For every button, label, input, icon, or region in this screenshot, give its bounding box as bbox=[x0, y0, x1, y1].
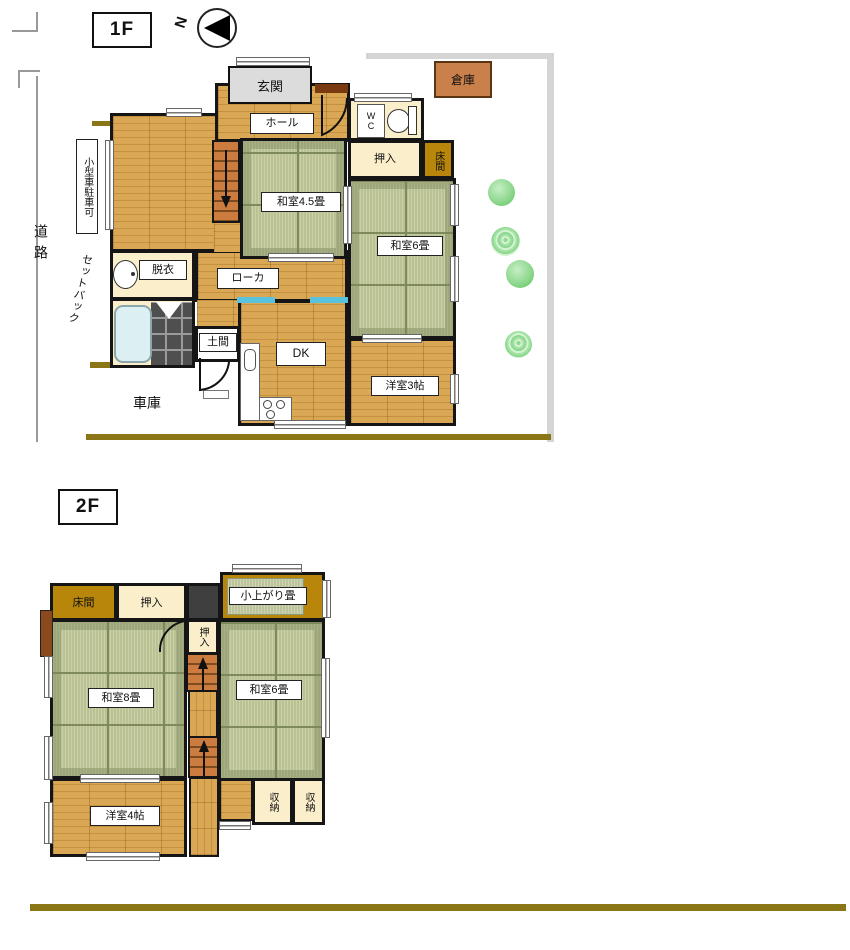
closet1f-label: 押入 bbox=[348, 140, 422, 179]
floor2-title-box: 2F bbox=[58, 489, 118, 525]
warehouse-box: 倉庫 bbox=[434, 61, 492, 98]
window bbox=[105, 140, 114, 230]
tatami8-tag: 和室8畳 bbox=[88, 688, 154, 708]
stove-burner-icon bbox=[263, 400, 272, 409]
raised-tatami-label: 小上がり畳 bbox=[241, 590, 296, 603]
window bbox=[44, 802, 53, 844]
toilet-icon bbox=[387, 109, 410, 133]
doma-door-arc bbox=[198, 358, 230, 392]
floorplan-canvas: 1F N 玄関 bbox=[0, 0, 850, 950]
garage-text: 車庫 bbox=[133, 395, 161, 411]
shrub-icon bbox=[488, 179, 515, 206]
shrub-icon bbox=[491, 227, 520, 256]
floor-patch-2f bbox=[219, 779, 253, 821]
room-tatami6-1f bbox=[348, 178, 456, 339]
doma-tag: 土間 bbox=[199, 333, 237, 352]
dressing-tag: 脱衣 bbox=[139, 260, 187, 280]
sliding-door-blue bbox=[310, 297, 348, 303]
room-storage-2: 収納 bbox=[292, 778, 325, 825]
tatami6-tag: 和室6畳 bbox=[377, 236, 443, 256]
closet2f-mid-label: 押入 bbox=[195, 627, 210, 647]
tatami45-tag: 和室4.5畳 bbox=[261, 192, 341, 212]
sliding-door bbox=[80, 774, 160, 783]
parking-note-label: 小型車駐車可 bbox=[81, 157, 93, 217]
site-line-bottom-page bbox=[30, 904, 846, 911]
lot-boundary-top bbox=[366, 53, 554, 59]
site-line-dash bbox=[90, 362, 112, 368]
room-tatami6-2f bbox=[218, 619, 325, 781]
lot-corner-mark bbox=[12, 12, 38, 32]
stairs-2f-upper bbox=[186, 653, 219, 692]
garage-label: 車庫 bbox=[133, 393, 161, 413]
hall-label: ホール bbox=[266, 117, 299, 130]
storage2-label: 収納 bbox=[301, 792, 316, 812]
north-label: N bbox=[172, 15, 192, 31]
north-arrow-icon: N bbox=[170, 4, 240, 52]
alcove2f-label: 床間 bbox=[73, 594, 95, 610]
floor-patch bbox=[214, 222, 240, 252]
sliding-door bbox=[321, 658, 330, 738]
tatami6-2f-tag: 和室6畳 bbox=[236, 680, 302, 700]
road-text: 道路 bbox=[33, 224, 49, 266]
western3-label: 洋室3帖 bbox=[385, 380, 424, 393]
stairs-2f-lower bbox=[188, 736, 219, 778]
raised-tatami-tag: 小上がり畳 bbox=[229, 587, 307, 605]
corridor-tag: ローカ bbox=[217, 268, 279, 289]
sliding-door-blue bbox=[237, 297, 275, 303]
closet2f-top-label: 押入 bbox=[141, 594, 163, 610]
stairs-1f bbox=[212, 140, 240, 223]
room-closet-2f-top: 押入 bbox=[116, 583, 187, 621]
alcove1f-text: 床間 bbox=[432, 151, 444, 171]
window bbox=[450, 184, 459, 226]
tatami8-label: 和室8畳 bbox=[101, 692, 140, 705]
western4-tag: 洋室4帖 bbox=[90, 806, 160, 826]
stove-burner-icon bbox=[266, 410, 275, 419]
dk-label: DK bbox=[293, 347, 310, 361]
window bbox=[44, 736, 53, 780]
balcony-rail bbox=[40, 610, 53, 657]
corridor-label: ローカ bbox=[232, 272, 265, 285]
wc-label: W C bbox=[367, 111, 376, 131]
floor1-title-box: 1F bbox=[92, 12, 152, 48]
floor2-title: 2F bbox=[76, 496, 100, 518]
stair-arrow-up-icon bbox=[197, 657, 209, 691]
bath-door-marker bbox=[156, 302, 182, 319]
site-line-bottom-1f bbox=[86, 434, 551, 440]
sliding-door bbox=[219, 821, 251, 830]
parking-note-box: 小型車駐車可 bbox=[76, 139, 98, 234]
window bbox=[450, 256, 459, 302]
window bbox=[274, 420, 346, 429]
room-storage-1: 収納 bbox=[252, 778, 293, 825]
entrance-door-bar bbox=[315, 84, 348, 93]
stair-arrow-down-icon bbox=[220, 148, 232, 210]
dressing-label: 脱衣 bbox=[152, 264, 174, 277]
bathtub bbox=[114, 305, 152, 363]
compass-needle bbox=[204, 15, 230, 41]
tatami45-label: 和室4.5畳 bbox=[277, 196, 325, 209]
stair-void-2f bbox=[186, 583, 221, 621]
stair-arrow-up-icon bbox=[198, 740, 210, 778]
room-alcove-2f: 床間 bbox=[50, 583, 117, 621]
corridor-extension bbox=[197, 300, 238, 328]
setback-text: セットバック bbox=[66, 252, 94, 325]
sliding-door bbox=[362, 334, 422, 343]
sliding-door bbox=[343, 186, 352, 244]
road-label: 道路 bbox=[31, 224, 51, 266]
floor1-title: 1F bbox=[110, 19, 134, 41]
alcove1f-label: 床間 bbox=[422, 143, 454, 179]
window bbox=[236, 57, 310, 66]
stove-burner-icon bbox=[276, 400, 285, 409]
window bbox=[450, 374, 459, 404]
toilet-tank-icon bbox=[408, 106, 417, 135]
doma-label: 土間 bbox=[207, 336, 229, 349]
room-front-room bbox=[110, 113, 218, 252]
closet2f-door-arc bbox=[159, 621, 187, 654]
room-closet-2f-mid: 押入 bbox=[186, 619, 219, 655]
entrance-label: 玄関 bbox=[257, 76, 283, 95]
closet1f-text: 押入 bbox=[374, 153, 396, 166]
western4-label: 洋室4帖 bbox=[105, 810, 144, 823]
dk-tag: DK bbox=[276, 342, 326, 366]
lot-boundary-right bbox=[547, 55, 554, 442]
window bbox=[44, 656, 53, 698]
storage1-label: 収納 bbox=[265, 792, 280, 812]
warehouse-label: 倉庫 bbox=[451, 71, 475, 88]
shrub-icon bbox=[506, 260, 534, 288]
kitchen-sink-icon bbox=[244, 349, 256, 371]
stair-landing bbox=[188, 692, 218, 737]
entrance-door-arc bbox=[320, 95, 348, 137]
washbasin-faucet-dot bbox=[131, 272, 135, 276]
window bbox=[86, 852, 160, 861]
hall-tag: ホール bbox=[250, 113, 314, 134]
entrance-porch: 玄関 bbox=[228, 66, 312, 104]
window bbox=[354, 93, 412, 102]
window bbox=[166, 108, 202, 117]
sliding-door bbox=[268, 253, 334, 262]
corridor-2f bbox=[189, 777, 219, 857]
tatami6-label: 和室6畳 bbox=[390, 240, 429, 253]
western3-tag: 洋室3帖 bbox=[371, 376, 439, 396]
tatami6-2f-label: 和室6畳 bbox=[249, 684, 288, 697]
window bbox=[232, 564, 302, 573]
site-line-dash bbox=[92, 121, 112, 126]
wc-stall: W C bbox=[357, 104, 385, 138]
setback-label: セットバック bbox=[64, 252, 96, 326]
window bbox=[322, 580, 331, 618]
shrub-icon bbox=[505, 331, 532, 358]
